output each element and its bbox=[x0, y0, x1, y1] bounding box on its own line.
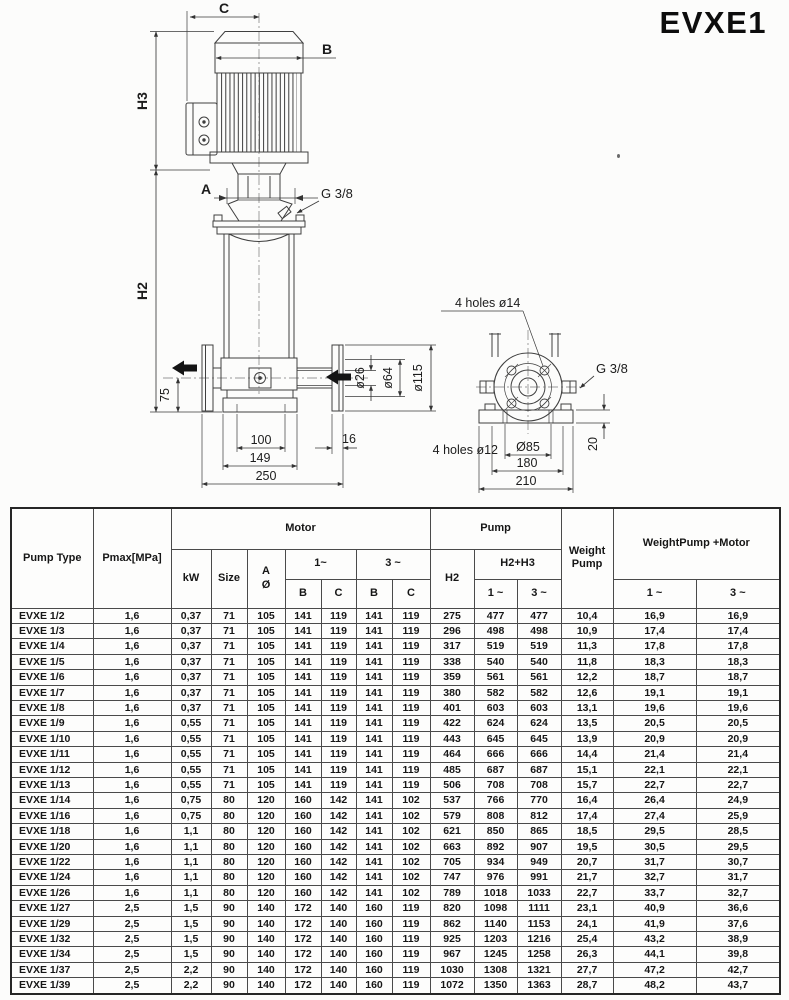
value-cell: 90 bbox=[211, 932, 247, 947]
value-cell: 160 bbox=[285, 855, 321, 870]
technical-drawing: C H3 H2 B A G 3/8 75 bbox=[0, 0, 789, 505]
value-cell: 119 bbox=[392, 747, 430, 762]
value-cell: 19,6 bbox=[696, 700, 780, 715]
value-cell: 141 bbox=[356, 639, 392, 654]
value-cell: 140 bbox=[247, 916, 285, 931]
value-cell: 1,6 bbox=[93, 623, 171, 638]
value-cell: 29,5 bbox=[613, 824, 696, 839]
dim-label-b: B bbox=[322, 41, 332, 57]
value-cell: 17,4 bbox=[561, 808, 613, 823]
value-cell: 275 bbox=[430, 608, 474, 623]
callout-4-holes-12: 4 holes ø12 bbox=[433, 443, 498, 457]
value-cell: 579 bbox=[430, 808, 474, 823]
value-cell: 172 bbox=[285, 978, 321, 994]
table-row: EVXE 1/111,60,55711051411191411194646666… bbox=[11, 747, 780, 762]
value-cell: 140 bbox=[247, 978, 285, 994]
value-cell: 1,6 bbox=[93, 839, 171, 854]
pump-type-cell: EVXE 1/14 bbox=[11, 793, 93, 808]
value-cell: 119 bbox=[392, 916, 430, 931]
header-weight-pump: Weight Pump bbox=[561, 508, 613, 608]
value-cell: 119 bbox=[392, 978, 430, 994]
value-cell: 747 bbox=[430, 870, 474, 885]
dim-label-c: C bbox=[219, 0, 229, 16]
value-cell: 80 bbox=[211, 855, 247, 870]
value-cell: 850 bbox=[474, 824, 517, 839]
base-view-dimensions: 4 holes ø14 G 3/8 4 holes ø12 Ø85 180 21… bbox=[433, 296, 628, 493]
value-cell: 142 bbox=[321, 824, 356, 839]
value-cell: 1245 bbox=[474, 947, 517, 962]
value-cell: 1308 bbox=[474, 962, 517, 977]
value-cell: 90 bbox=[211, 962, 247, 977]
value-cell: 666 bbox=[474, 747, 517, 762]
header-row-1: Pump Type Pmax[MPa] Motor Pump Weight Pu… bbox=[11, 508, 780, 549]
dim-label-dia115: ø115 bbox=[411, 364, 425, 392]
value-cell: 141 bbox=[285, 747, 321, 762]
table-row: EVXE 1/372,52,29014017214016011910301308… bbox=[11, 962, 780, 977]
value-cell: 141 bbox=[285, 639, 321, 654]
value-cell: 603 bbox=[517, 700, 561, 715]
value-cell: 0,37 bbox=[171, 654, 211, 669]
value-cell: 102 bbox=[392, 870, 430, 885]
table-row: EVXE 1/51,60,377110514111914111933854054… bbox=[11, 654, 780, 669]
value-cell: 20,5 bbox=[613, 716, 696, 731]
dim-label-dia26: ø26 bbox=[353, 367, 367, 389]
dim-label-180: 180 bbox=[517, 456, 538, 470]
value-cell: 1258 bbox=[517, 947, 561, 962]
value-cell: 1111 bbox=[517, 901, 561, 916]
value-cell: 160 bbox=[285, 793, 321, 808]
value-cell: 22,7 bbox=[561, 885, 613, 900]
pump-type-cell: EVXE 1/22 bbox=[11, 855, 93, 870]
value-cell: 708 bbox=[517, 777, 561, 792]
value-cell: 141 bbox=[285, 654, 321, 669]
pump-type-cell: EVXE 1/39 bbox=[11, 978, 93, 994]
value-cell: 603 bbox=[474, 700, 517, 715]
value-cell: 582 bbox=[474, 685, 517, 700]
pump-type-cell: EVXE 1/5 bbox=[11, 654, 93, 669]
header-c-1ph: C bbox=[321, 579, 356, 608]
value-cell: 13,9 bbox=[561, 731, 613, 746]
value-cell: 0,55 bbox=[171, 762, 211, 777]
value-cell: 105 bbox=[247, 762, 285, 777]
pump-type-cell: EVXE 1/34 bbox=[11, 947, 93, 962]
value-cell: 296 bbox=[430, 623, 474, 638]
value-cell: 1,5 bbox=[171, 932, 211, 947]
datasheet-page: EVXE1 bbox=[0, 0, 789, 1000]
table-row: EVXE 1/91,60,557110514111914111942262462… bbox=[11, 716, 780, 731]
value-cell: 0,75 bbox=[171, 808, 211, 823]
dim-label-75: 75 bbox=[158, 388, 172, 402]
value-cell: 1,6 bbox=[93, 608, 171, 623]
value-cell: 892 bbox=[474, 839, 517, 854]
value-cell: 561 bbox=[517, 670, 561, 685]
value-cell: 862 bbox=[430, 916, 474, 931]
value-cell: 422 bbox=[430, 716, 474, 731]
value-cell: 90 bbox=[211, 916, 247, 931]
value-cell: 338 bbox=[430, 654, 474, 669]
value-cell: 119 bbox=[392, 608, 430, 623]
value-cell: 80 bbox=[211, 885, 247, 900]
thread-label-g38-top: G 3/8 bbox=[321, 186, 353, 201]
value-cell: 119 bbox=[321, 654, 356, 669]
value-cell: 506 bbox=[430, 777, 474, 792]
value-cell: 119 bbox=[321, 670, 356, 685]
value-cell: 105 bbox=[247, 608, 285, 623]
value-cell: 19,1 bbox=[696, 685, 780, 700]
pump-side-view bbox=[163, 13, 368, 412]
value-cell: 119 bbox=[321, 731, 356, 746]
value-cell: 705 bbox=[430, 855, 474, 870]
value-cell: 90 bbox=[211, 947, 247, 962]
value-cell: 140 bbox=[321, 932, 356, 947]
value-cell: 142 bbox=[321, 870, 356, 885]
value-cell: 71 bbox=[211, 777, 247, 792]
value-cell: 43,7 bbox=[696, 978, 780, 994]
value-cell: 160 bbox=[285, 885, 321, 900]
value-cell: 812 bbox=[517, 808, 561, 823]
value-cell: 934 bbox=[474, 855, 517, 870]
value-cell: 561 bbox=[474, 670, 517, 685]
value-cell: 26,3 bbox=[561, 947, 613, 962]
value-cell: 645 bbox=[474, 731, 517, 746]
table-row: EVXE 1/131,60,55711051411191411195067087… bbox=[11, 777, 780, 792]
value-cell: 519 bbox=[474, 639, 517, 654]
value-cell: 22,7 bbox=[696, 777, 780, 792]
value-cell: 21,7 bbox=[561, 870, 613, 885]
value-cell: 71 bbox=[211, 747, 247, 762]
value-cell: 498 bbox=[517, 623, 561, 638]
value-cell: 1350 bbox=[474, 978, 517, 994]
value-cell: 141 bbox=[356, 855, 392, 870]
value-cell: 119 bbox=[321, 762, 356, 777]
value-cell: 71 bbox=[211, 670, 247, 685]
dim-label-210: 210 bbox=[516, 474, 537, 488]
value-cell: 1,6 bbox=[93, 885, 171, 900]
value-cell: 141 bbox=[285, 623, 321, 638]
pump-type-cell: EVXE 1/16 bbox=[11, 808, 93, 823]
value-cell: 140 bbox=[321, 978, 356, 994]
table-row: EVXE 1/101,60,55711051411191411194436456… bbox=[11, 731, 780, 746]
value-cell: 105 bbox=[247, 623, 285, 638]
pump-type-cell: EVXE 1/27 bbox=[11, 901, 93, 916]
value-cell: 120 bbox=[247, 870, 285, 885]
value-cell: 172 bbox=[285, 916, 321, 931]
value-cell: 141 bbox=[356, 731, 392, 746]
value-cell: 0,37 bbox=[171, 700, 211, 715]
value-cell: 2,5 bbox=[93, 947, 171, 962]
value-cell: 140 bbox=[247, 901, 285, 916]
table-header: Pump Type Pmax[MPa] Motor Pump Weight Pu… bbox=[11, 508, 780, 608]
value-cell: 120 bbox=[247, 824, 285, 839]
value-cell: 13,5 bbox=[561, 716, 613, 731]
value-cell: 477 bbox=[517, 608, 561, 623]
value-cell: 1,6 bbox=[93, 685, 171, 700]
value-cell: 1,6 bbox=[93, 762, 171, 777]
value-cell: 0,55 bbox=[171, 777, 211, 792]
pump-type-cell: EVXE 1/10 bbox=[11, 731, 93, 746]
value-cell: 1,6 bbox=[93, 870, 171, 885]
value-cell: 30,7 bbox=[696, 855, 780, 870]
value-cell: 22,1 bbox=[696, 762, 780, 777]
value-cell: 380 bbox=[430, 685, 474, 700]
value-cell: 71 bbox=[211, 716, 247, 731]
value-cell: 27,4 bbox=[613, 808, 696, 823]
value-cell: 42,7 bbox=[696, 962, 780, 977]
value-cell: 140 bbox=[321, 962, 356, 977]
value-cell: 48,2 bbox=[613, 978, 696, 994]
value-cell: 789 bbox=[430, 885, 474, 900]
value-cell: 119 bbox=[392, 901, 430, 916]
value-cell: 119 bbox=[321, 777, 356, 792]
value-cell: 141 bbox=[356, 623, 392, 638]
header-a-diameter: A Ø bbox=[247, 549, 285, 608]
pump-base-view bbox=[476, 330, 580, 434]
value-cell: 359 bbox=[430, 670, 474, 685]
value-cell: 1,6 bbox=[93, 654, 171, 669]
thread-label-g38-side: G 3/8 bbox=[596, 361, 628, 376]
value-cell: 1321 bbox=[517, 962, 561, 977]
header-size: Size bbox=[211, 549, 247, 608]
value-cell: 25,4 bbox=[561, 932, 613, 947]
value-cell: 120 bbox=[247, 793, 285, 808]
value-cell: 47,2 bbox=[613, 962, 696, 977]
value-cell: 27,7 bbox=[561, 962, 613, 977]
value-cell: 119 bbox=[321, 716, 356, 731]
header-pmax: Pmax[MPa] bbox=[93, 508, 171, 608]
table-row: EVXE 1/61,60,377110514111914111935956156… bbox=[11, 670, 780, 685]
header-h2h3-1ph: 1 ~ bbox=[474, 579, 517, 608]
value-cell: 39,8 bbox=[696, 947, 780, 962]
value-cell: 105 bbox=[247, 716, 285, 731]
value-cell: 0,37 bbox=[171, 685, 211, 700]
value-cell: 1,6 bbox=[93, 700, 171, 715]
value-cell: 21,4 bbox=[613, 747, 696, 762]
value-cell: 119 bbox=[392, 716, 430, 731]
dim-label-149: 149 bbox=[250, 451, 271, 465]
header-h2h3-3ph: 3 ~ bbox=[517, 579, 561, 608]
value-cell: 160 bbox=[356, 932, 392, 947]
value-cell: 141 bbox=[285, 731, 321, 746]
value-cell: 160 bbox=[285, 839, 321, 854]
value-cell: 18,7 bbox=[696, 670, 780, 685]
header-wpm-1ph: 1 ~ bbox=[613, 579, 696, 608]
header-b-1ph: B bbox=[285, 579, 321, 608]
value-cell: 443 bbox=[430, 731, 474, 746]
value-cell: 141 bbox=[285, 608, 321, 623]
value-cell: 160 bbox=[356, 962, 392, 977]
value-cell: 172 bbox=[285, 901, 321, 916]
value-cell: 160 bbox=[285, 824, 321, 839]
value-cell: 119 bbox=[392, 731, 430, 746]
value-cell: 1,6 bbox=[93, 747, 171, 762]
value-cell: 20,9 bbox=[613, 731, 696, 746]
value-cell: 537 bbox=[430, 793, 474, 808]
value-cell: 808 bbox=[474, 808, 517, 823]
value-cell: 1,5 bbox=[171, 916, 211, 931]
value-cell: 119 bbox=[321, 700, 356, 715]
dim-label-20: 20 bbox=[586, 437, 600, 451]
value-cell: 119 bbox=[321, 623, 356, 638]
pump-type-cell: EVXE 1/24 bbox=[11, 870, 93, 885]
value-cell: 119 bbox=[392, 762, 430, 777]
value-cell: 16,9 bbox=[696, 608, 780, 623]
value-cell: 140 bbox=[321, 916, 356, 931]
table-row: EVXE 1/342,51,59014017214016011996712451… bbox=[11, 947, 780, 962]
table-row: EVXE 1/141,60,75801201601421411025377667… bbox=[11, 793, 780, 808]
value-cell: 1,1 bbox=[171, 885, 211, 900]
value-cell: 925 bbox=[430, 932, 474, 947]
value-cell: 102 bbox=[392, 808, 430, 823]
value-cell: 820 bbox=[430, 901, 474, 916]
header-h2h3: H2+H3 bbox=[474, 549, 561, 579]
value-cell: 141 bbox=[285, 685, 321, 700]
value-cell: 32,7 bbox=[696, 885, 780, 900]
table-row: EVXE 1/322,51,59014017214016011992512031… bbox=[11, 932, 780, 947]
value-cell: 20,7 bbox=[561, 855, 613, 870]
value-cell: 140 bbox=[247, 932, 285, 947]
header-motor-1ph: 1~ bbox=[285, 549, 356, 579]
value-cell: 1033 bbox=[517, 885, 561, 900]
dim-label-h2: H2 bbox=[134, 282, 150, 300]
value-cell: 1,6 bbox=[93, 731, 171, 746]
value-cell: 17,8 bbox=[696, 639, 780, 654]
value-cell: 624 bbox=[474, 716, 517, 731]
value-cell: 120 bbox=[247, 839, 285, 854]
header-weight-pump-motor: WeightPump +Motor bbox=[613, 508, 780, 579]
value-cell: 141 bbox=[356, 824, 392, 839]
value-cell: 1,6 bbox=[93, 777, 171, 792]
pump-type-cell: EVXE 1/12 bbox=[11, 762, 93, 777]
value-cell: 24,9 bbox=[696, 793, 780, 808]
value-cell: 477 bbox=[474, 608, 517, 623]
value-cell: 663 bbox=[430, 839, 474, 854]
value-cell: 1,6 bbox=[93, 716, 171, 731]
value-cell: 29,5 bbox=[696, 839, 780, 854]
value-cell: 21,4 bbox=[696, 747, 780, 762]
dim-label-dia85: Ø85 bbox=[516, 440, 540, 454]
value-cell: 71 bbox=[211, 685, 247, 700]
table-row: EVXE 1/41,60,377110514111914111931751951… bbox=[11, 639, 780, 654]
table-row: EVXE 1/31,60,377110514111914111929649849… bbox=[11, 623, 780, 638]
callout-4-holes-14: 4 holes ø14 bbox=[455, 296, 520, 310]
pump-type-cell: EVXE 1/18 bbox=[11, 824, 93, 839]
value-cell: 17,4 bbox=[696, 623, 780, 638]
value-cell: 2,5 bbox=[93, 932, 171, 947]
value-cell: 0,37 bbox=[171, 623, 211, 638]
value-cell: 1018 bbox=[474, 885, 517, 900]
value-cell: 90 bbox=[211, 978, 247, 994]
value-cell: 19,6 bbox=[613, 700, 696, 715]
value-cell: 160 bbox=[285, 808, 321, 823]
value-cell: 0,37 bbox=[171, 639, 211, 654]
value-cell: 519 bbox=[517, 639, 561, 654]
value-cell: 12,6 bbox=[561, 685, 613, 700]
value-cell: 666 bbox=[517, 747, 561, 762]
value-cell: 71 bbox=[211, 623, 247, 638]
value-cell: 160 bbox=[356, 978, 392, 994]
value-cell: 2,5 bbox=[93, 962, 171, 977]
value-cell: 1,1 bbox=[171, 839, 211, 854]
value-cell: 28,5 bbox=[696, 824, 780, 839]
value-cell: 140 bbox=[247, 947, 285, 962]
value-cell: 10,4 bbox=[561, 608, 613, 623]
motor-stool bbox=[228, 163, 292, 221]
value-cell: 464 bbox=[430, 747, 474, 762]
value-cell: 142 bbox=[321, 885, 356, 900]
value-cell: 71 bbox=[211, 654, 247, 669]
value-cell: 119 bbox=[321, 685, 356, 700]
value-cell: 105 bbox=[247, 685, 285, 700]
value-cell: 1363 bbox=[517, 978, 561, 994]
value-cell: 141 bbox=[285, 716, 321, 731]
value-cell: 1098 bbox=[474, 901, 517, 916]
value-cell: 37,6 bbox=[696, 916, 780, 931]
value-cell: 865 bbox=[517, 824, 561, 839]
value-cell: 766 bbox=[474, 793, 517, 808]
value-cell: 1,5 bbox=[171, 947, 211, 962]
value-cell: 120 bbox=[247, 885, 285, 900]
value-cell: 160 bbox=[356, 901, 392, 916]
value-cell: 71 bbox=[211, 608, 247, 623]
value-cell: 41,9 bbox=[613, 916, 696, 931]
value-cell: 540 bbox=[474, 654, 517, 669]
value-cell: 1,6 bbox=[93, 808, 171, 823]
pump-type-cell: EVXE 1/9 bbox=[11, 716, 93, 731]
value-cell: 485 bbox=[430, 762, 474, 777]
value-cell: 44,1 bbox=[613, 947, 696, 962]
value-cell: 141 bbox=[356, 870, 392, 885]
pump-type-cell: EVXE 1/20 bbox=[11, 839, 93, 854]
terminal-box bbox=[186, 103, 217, 155]
value-cell: 119 bbox=[392, 777, 430, 792]
pump-type-cell: EVXE 1/26 bbox=[11, 885, 93, 900]
value-cell: 141 bbox=[356, 762, 392, 777]
dim-label-250: 250 bbox=[256, 469, 277, 483]
value-cell: 1072 bbox=[430, 978, 474, 994]
value-cell: 105 bbox=[247, 731, 285, 746]
value-cell: 645 bbox=[517, 731, 561, 746]
value-cell: 90 bbox=[211, 901, 247, 916]
value-cell: 22,7 bbox=[613, 777, 696, 792]
value-cell: 140 bbox=[321, 901, 356, 916]
value-cell: 11,3 bbox=[561, 639, 613, 654]
pump-type-cell: EVXE 1/11 bbox=[11, 747, 93, 762]
value-cell: 498 bbox=[474, 623, 517, 638]
value-cell: 141 bbox=[356, 685, 392, 700]
value-cell: 102 bbox=[392, 824, 430, 839]
value-cell: 967 bbox=[430, 947, 474, 962]
value-cell: 624 bbox=[517, 716, 561, 731]
pump-type-cell: EVXE 1/37 bbox=[11, 962, 93, 977]
pump-type-cell: EVXE 1/4 bbox=[11, 639, 93, 654]
value-cell: 1,5 bbox=[171, 901, 211, 916]
value-cell: 119 bbox=[392, 654, 430, 669]
value-cell: 172 bbox=[285, 947, 321, 962]
value-cell: 15,7 bbox=[561, 777, 613, 792]
value-cell: 119 bbox=[321, 747, 356, 762]
value-cell: 141 bbox=[356, 700, 392, 715]
value-cell: 1,6 bbox=[93, 855, 171, 870]
value-cell: 16,9 bbox=[613, 608, 696, 623]
value-cell: 1,6 bbox=[93, 639, 171, 654]
table-row: EVXE 1/71,60,377110514111914111938058258… bbox=[11, 685, 780, 700]
value-cell: 18,7 bbox=[613, 670, 696, 685]
header-h2: H2 bbox=[430, 549, 474, 608]
value-cell: 172 bbox=[285, 962, 321, 977]
header-pump-type: Pump Type bbox=[11, 508, 93, 608]
value-cell: 80 bbox=[211, 839, 247, 854]
value-cell: 119 bbox=[392, 685, 430, 700]
